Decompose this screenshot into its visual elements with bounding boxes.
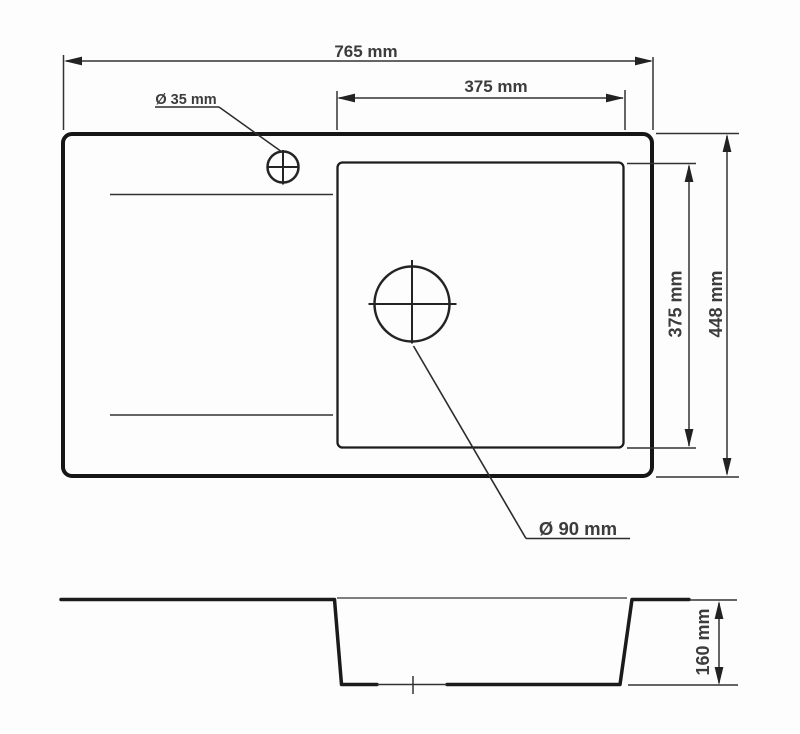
svg-text:448 mm: 448 mm <box>706 270 726 337</box>
svg-text:375 mm: 375 mm <box>464 77 527 96</box>
svg-text:Ø 90 mm: Ø 90 mm <box>539 518 617 539</box>
svg-text:160 mm: 160 mm <box>693 608 713 675</box>
svg-text:765 mm: 765 mm <box>334 42 397 61</box>
svg-text:375 mm: 375 mm <box>666 270 686 337</box>
svg-text:Ø 35 mm: Ø 35 mm <box>155 92 216 108</box>
